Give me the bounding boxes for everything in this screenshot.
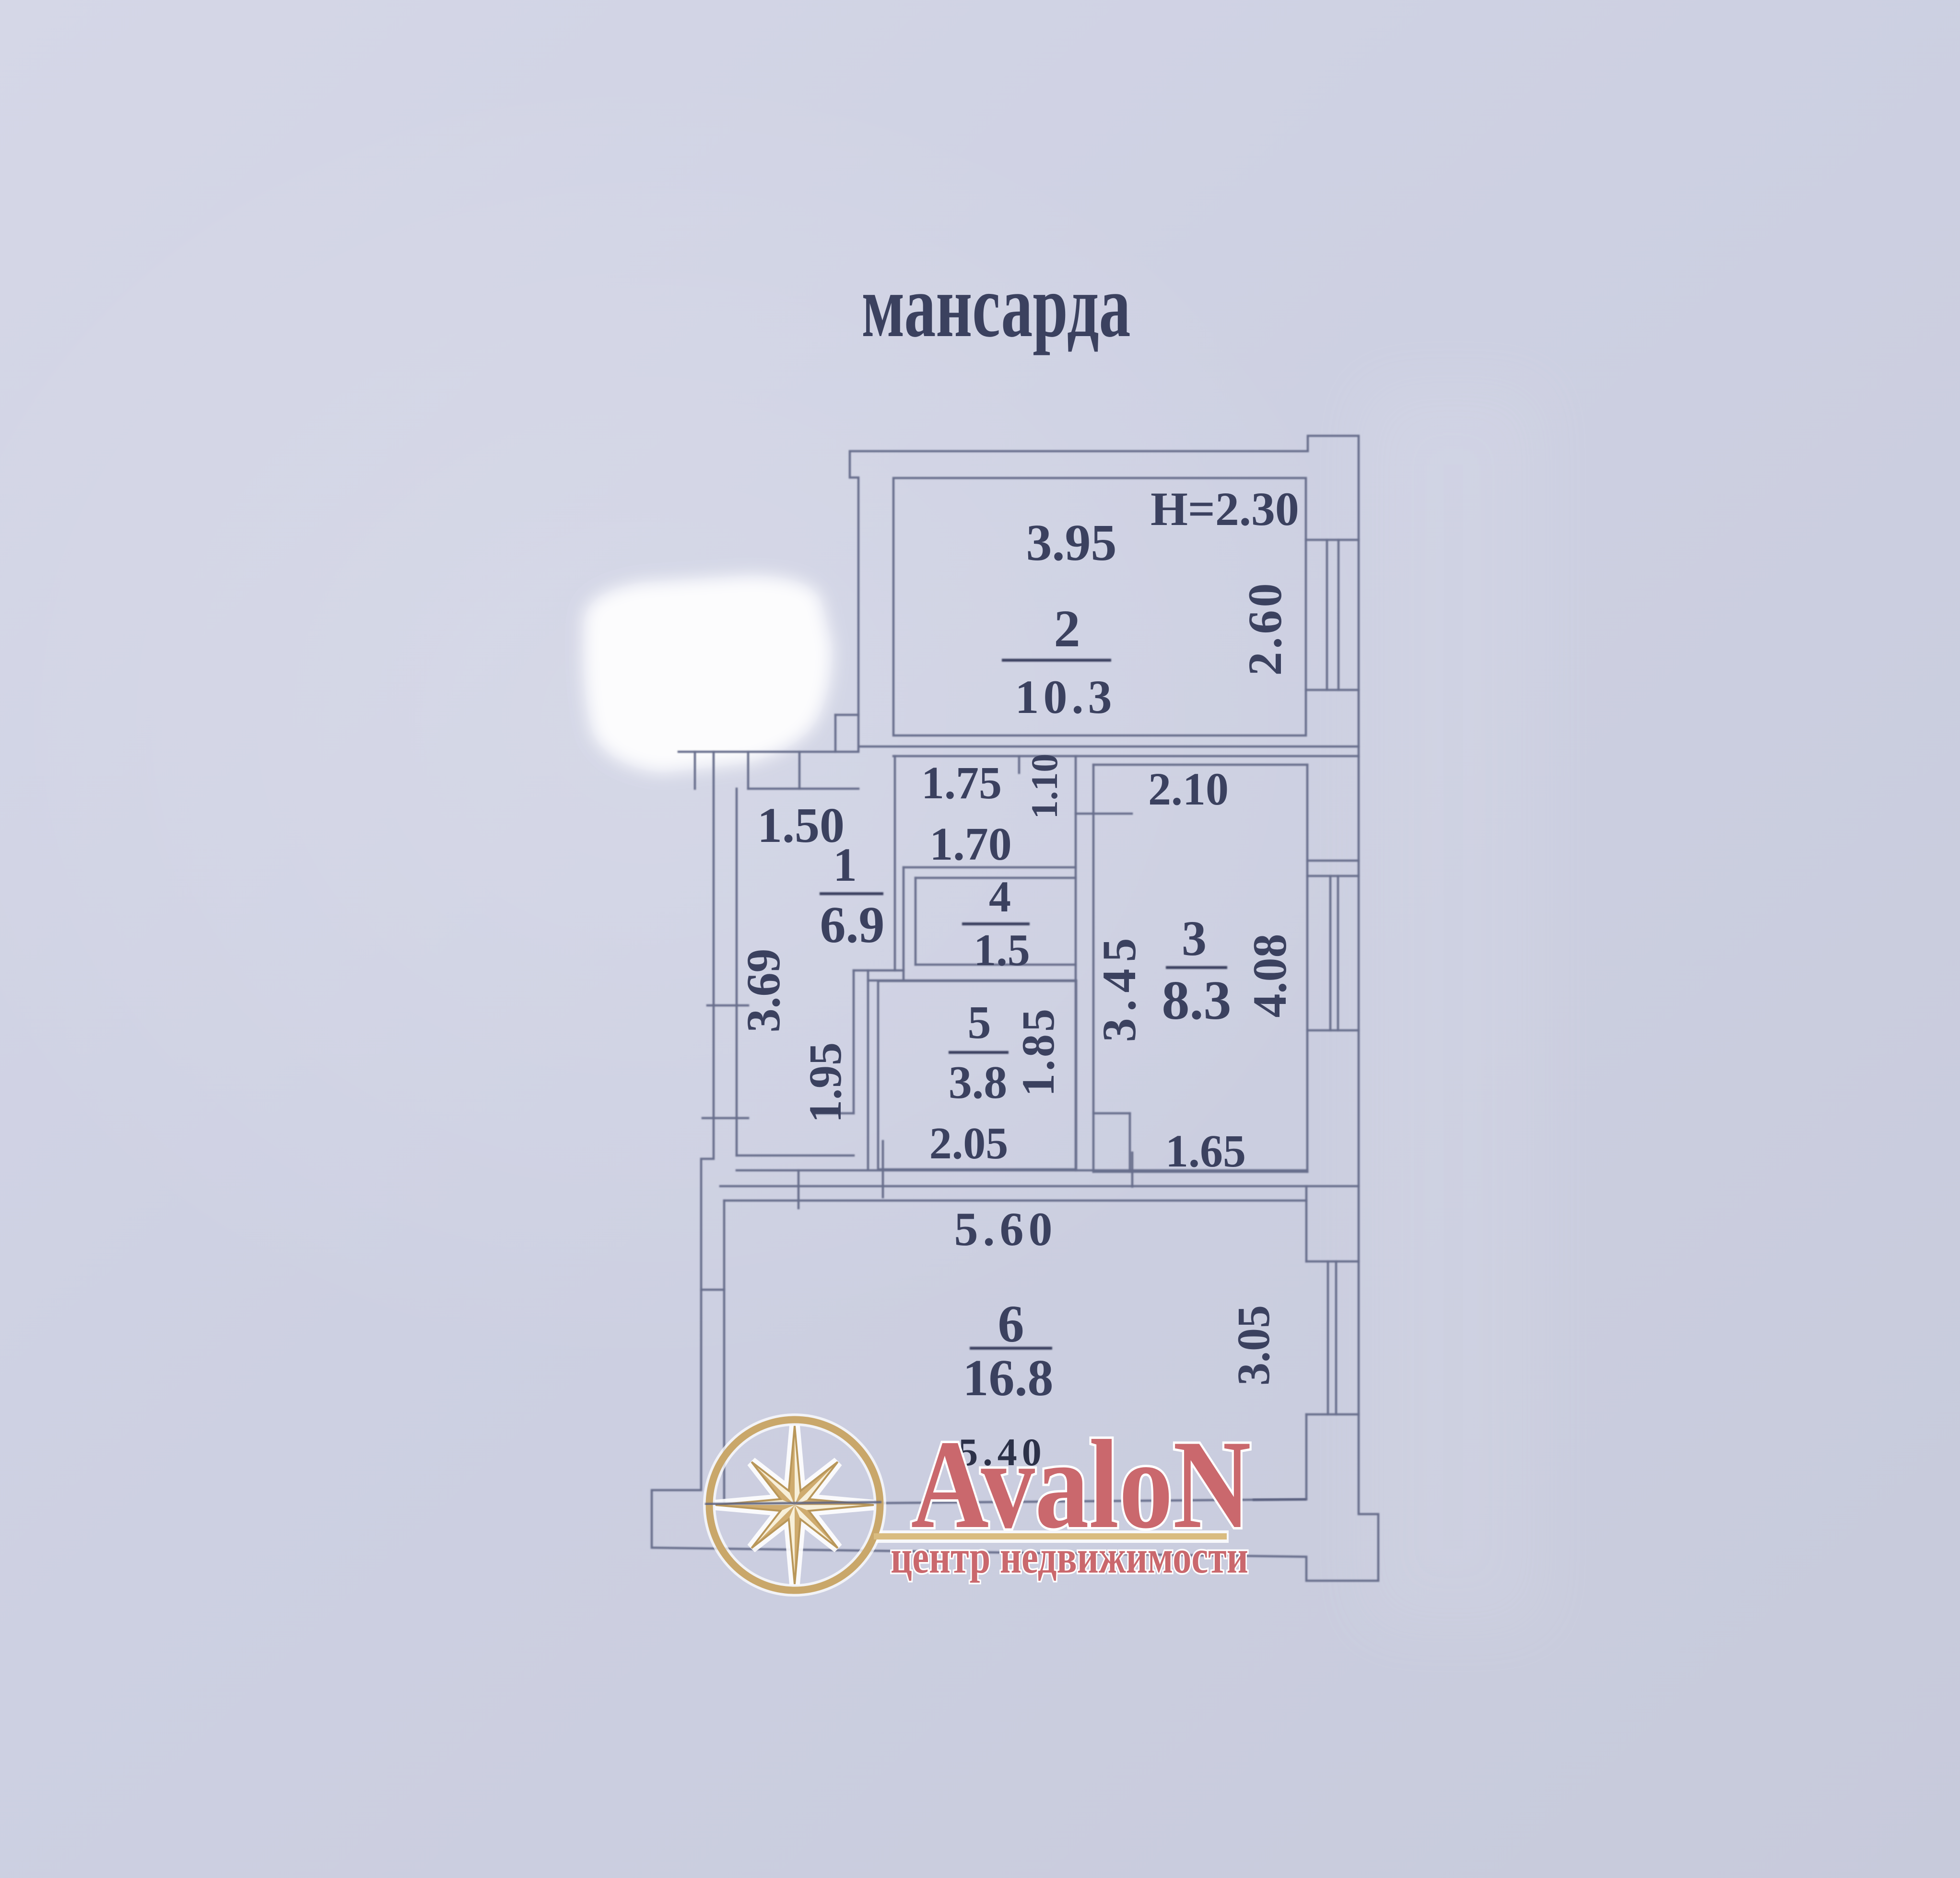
svg-text:5.60: 5.60 — [954, 1202, 1057, 1256]
svg-text:10.3: 10.3 — [1015, 670, 1116, 723]
svg-text:3.05: 3.05 — [1228, 1305, 1279, 1386]
svg-text:4.08: 4.08 — [1243, 934, 1296, 1018]
svg-text:6.9: 6.9 — [820, 897, 885, 954]
svg-text:2: 2 — [1054, 599, 1080, 658]
svg-text:1.70: 1.70 — [929, 818, 1012, 870]
svg-text:Н=2.30: Н=2.30 — [1150, 482, 1299, 536]
svg-text:6: 6 — [998, 1295, 1024, 1353]
svg-text:3.69: 3.69 — [737, 949, 790, 1033]
svg-text:1.65: 1.65 — [1165, 1125, 1246, 1177]
svg-text:16.8: 16.8 — [963, 1350, 1054, 1407]
svg-text:центр недвижимости: центр недвижимости — [891, 1531, 1248, 1583]
svg-text:1.75: 1.75 — [921, 757, 1002, 808]
svg-text:1.85: 1.85 — [1012, 1006, 1064, 1096]
svg-text:3.8: 3.8 — [949, 1057, 1008, 1108]
svg-text:1: 1 — [833, 838, 857, 891]
svg-text:1.50: 1.50 — [757, 798, 845, 853]
svg-text:1.95: 1.95 — [799, 1042, 851, 1123]
svg-text:мансарда: мансарда — [862, 257, 1131, 356]
svg-text:3.45: 3.45 — [1092, 932, 1146, 1042]
svg-text:2.05: 2.05 — [929, 1119, 1009, 1168]
svg-text:5: 5 — [968, 997, 991, 1049]
svg-text:2.60: 2.60 — [1238, 581, 1291, 676]
svg-text:4: 4 — [989, 872, 1011, 921]
svg-text:3.95: 3.95 — [1026, 514, 1117, 572]
svg-text:1.5: 1.5 — [974, 925, 1030, 975]
svg-text:8.3: 8.3 — [1162, 970, 1232, 1031]
svg-text:3: 3 — [1182, 911, 1207, 966]
svg-text:2.10: 2.10 — [1148, 763, 1229, 815]
svg-text:1.10: 1.10 — [1023, 754, 1065, 819]
